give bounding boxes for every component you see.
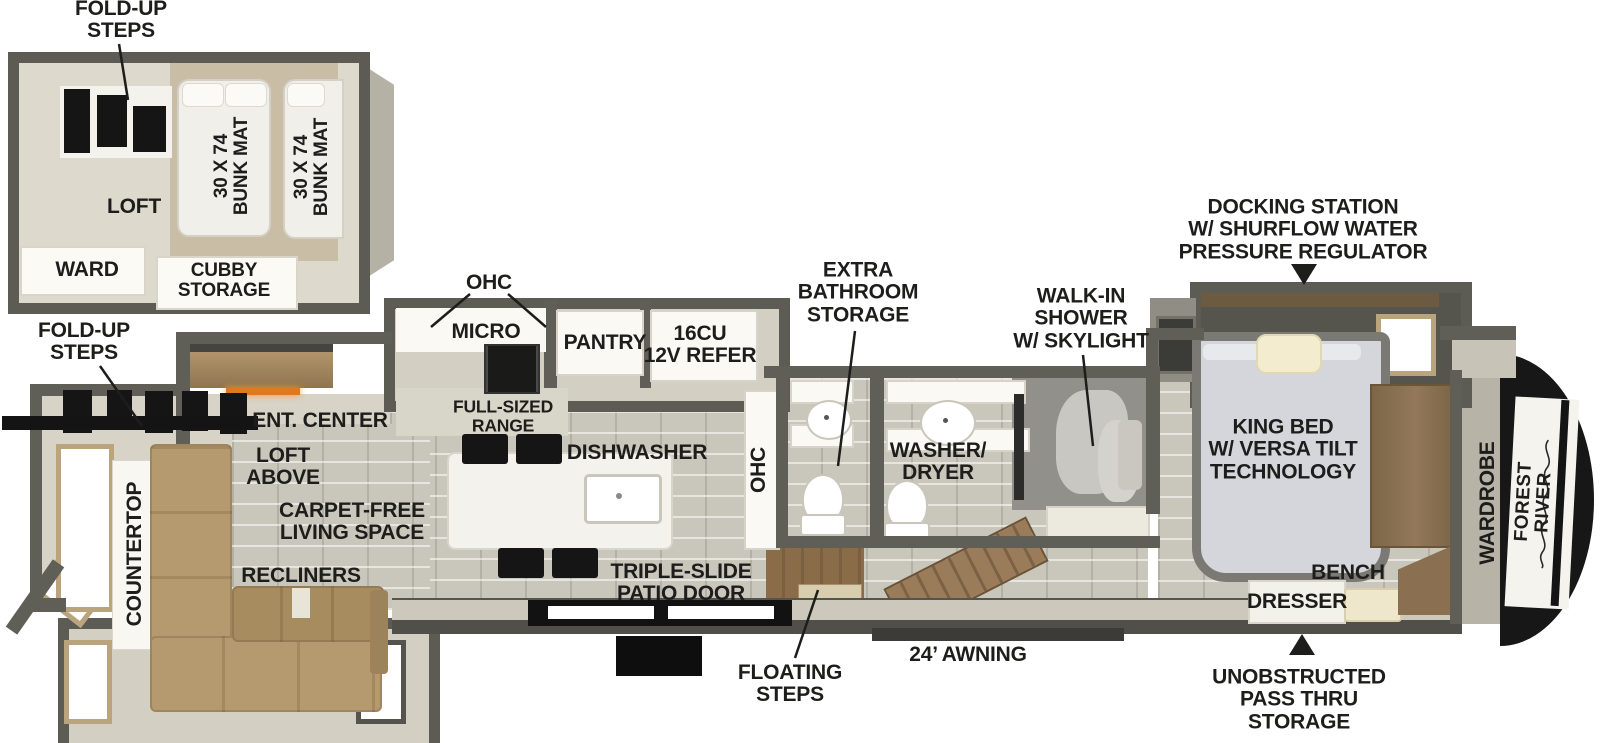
label-ward: WARD [55, 259, 118, 281]
pass-thru-arrow-icon [1289, 634, 1315, 655]
label-bunk-mat-1: 30 X 74 BUNK MAT [212, 117, 252, 215]
label-pantry: PANTRY [564, 332, 647, 354]
label-ohc-hall: OHC [748, 447, 770, 493]
label-bench: BENCH [1311, 562, 1385, 584]
leader-lines [0, 0, 1600, 743]
label-bunk-mat-2: 30 X 74 BUNK MAT [292, 118, 332, 216]
leader-extra-bath [838, 331, 855, 466]
label-micro: MICRO [452, 321, 521, 343]
label-main-fold-up-steps: FOLD-UP STEPS [38, 320, 130, 365]
label-recliners: RECLINERS [241, 565, 361, 587]
label-awning: 24’ AWNING [909, 644, 1026, 666]
leader-main-steps [100, 366, 142, 426]
label-king-bed: KING BED W/ VERSA TILT TECHNOLOGY [1208, 417, 1357, 484]
label-ent-center: ENT. CENTER [252, 410, 387, 432]
label-floating-steps: FLOATING STEPS [738, 662, 842, 707]
label-pass-thru: UNOBSTRUCTED PASS THRU STORAGE [1212, 667, 1386, 734]
label-patio-door: TRIPLE-SLIDE PATIO DOOR [610, 561, 751, 606]
leader-floating-steps [795, 590, 818, 658]
label-washer-dryer: WASHER/ DRYER [890, 440, 987, 485]
label-carpet-free: CARPET-FREE LIVING SPACE [279, 500, 425, 545]
docking-arrow-icon [1291, 264, 1317, 285]
brand-logo-text: FOREST RIVER [1512, 461, 1556, 543]
label-range: FULL-SIZED RANGE [453, 397, 553, 434]
label-countertop: COUNTERTOP [124, 482, 146, 627]
label-dishwasher: DISHWASHER [567, 442, 707, 464]
label-cubby-storage: CUBBY STORAGE [178, 261, 270, 301]
label-wardrobe: WARDROBE [1477, 441, 1499, 564]
label-ohc-kitchen: OHC [466, 272, 512, 294]
leader-loft-steps [119, 44, 128, 100]
label-loft: LOFT [107, 196, 161, 218]
label-loft-fold-up-steps: FOLD-UP STEPS [75, 0, 167, 42]
label-walk-in-shower: WALK-IN SHOWER W/ SKYLIGHT [1013, 286, 1148, 353]
leader-shower [1083, 355, 1093, 446]
label-dresser: DRESSER [1247, 591, 1347, 613]
label-docking-station: DOCKING STATION W/ SHURFLOW WATER PRESSU… [1179, 197, 1428, 264]
floorplan: FOLD-UP STEPS LOFT 30 X 74 BUNK MAT 30 X… [0, 0, 1600, 743]
label-extra-bath-storage: EXTRA BATHROOM STORAGE [798, 260, 919, 327]
label-refer: 16CU 12V REFER [644, 323, 757, 368]
label-loft-above: LOFT ABOVE [246, 445, 320, 490]
